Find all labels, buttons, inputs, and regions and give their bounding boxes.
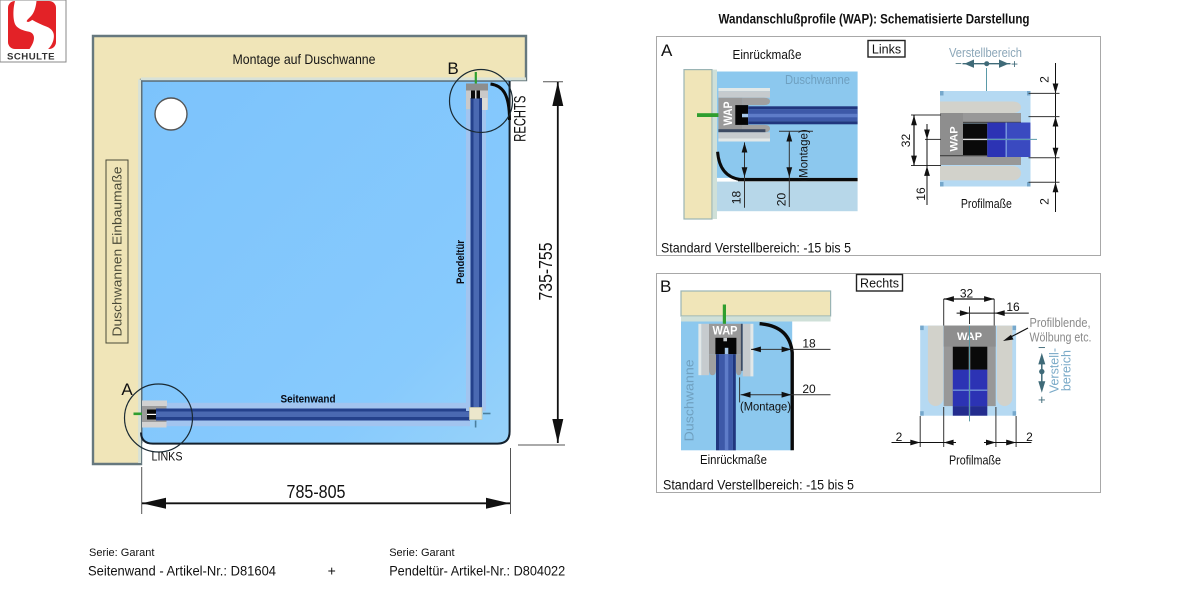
svg-text:A: A — [661, 41, 673, 60]
svg-text:−: − — [1038, 340, 1046, 355]
svg-text:B: B — [447, 59, 458, 78]
svg-text:Duschwanne: Duschwanne — [785, 73, 850, 87]
svg-text:16: 16 — [1006, 300, 1020, 314]
svg-text:Einrückmaße: Einrückmaße — [733, 47, 802, 62]
svg-text:32: 32 — [960, 287, 974, 301]
svg-text:Seitenwand: Seitenwand — [281, 394, 336, 406]
svg-text:Wandanschlußprofile (WAP): Sch: Wandanschlußprofile (WAP): Schematisiert… — [719, 12, 1030, 27]
svg-text:WAP: WAP — [721, 102, 735, 126]
svg-text:2: 2 — [1038, 76, 1052, 83]
svg-text:Links: Links — [872, 43, 901, 57]
svg-text:+: + — [328, 563, 336, 579]
svg-text:Montage auf Duschwanne: Montage auf Duschwanne — [233, 52, 376, 67]
svg-text:B: B — [660, 277, 671, 296]
svg-text:20: 20 — [775, 193, 789, 207]
svg-text:Duschwannen Einbaumaße: Duschwannen Einbaumaße — [110, 167, 125, 337]
svg-text:735-755: 735-755 — [536, 243, 556, 301]
svg-text:WAP: WAP — [713, 324, 738, 338]
svg-text:Standard Verstellbereich: -15: Standard Verstellbereich: -15 bis 5 — [663, 477, 854, 493]
svg-text:+: + — [1011, 57, 1018, 71]
svg-text:Seitenwand - Artikel-Nr.: D816: Seitenwand - Artikel-Nr.: D81604 — [88, 563, 276, 579]
svg-text:SCHULTE: SCHULTE — [7, 52, 55, 63]
svg-text:Serie: Garant: Serie: Garant — [389, 547, 454, 559]
svg-text:2: 2 — [896, 430, 903, 444]
svg-text:WAP: WAP — [949, 126, 961, 151]
svg-text:2: 2 — [1026, 430, 1033, 444]
svg-text:16: 16 — [914, 187, 928, 201]
svg-text:bereich: bereich — [1060, 350, 1074, 391]
svg-text:Einrückmaße: Einrückmaße — [700, 452, 767, 467]
svg-text:Pendeltür: Pendeltür — [455, 239, 467, 284]
svg-text:Profilblende,: Profilblende, — [1030, 316, 1091, 330]
svg-text:Pendeltür- Artikel-Nr.: D80402: Pendeltür- Artikel-Nr.: D804022 — [389, 563, 565, 579]
svg-text:+: + — [1038, 392, 1046, 407]
svg-text:Profilmaße: Profilmaße — [949, 453, 1001, 468]
svg-text:(Montage): (Montage) — [799, 129, 811, 182]
svg-text:785-805: 785-805 — [287, 482, 346, 502]
svg-text:Serie: Garant: Serie: Garant — [89, 547, 154, 559]
svg-text:18: 18 — [730, 191, 744, 205]
svg-text:LINKS: LINKS — [152, 452, 183, 464]
svg-text:A: A — [121, 380, 133, 399]
svg-text:2: 2 — [1038, 198, 1052, 205]
svg-text:32: 32 — [899, 134, 913, 148]
svg-text:Profilmaße: Profilmaße — [961, 196, 1012, 211]
svg-text:Rechts: Rechts — [860, 277, 899, 291]
svg-text:−: − — [955, 59, 962, 71]
svg-text:18: 18 — [802, 337, 816, 351]
svg-text:Standard Verstellbereich: -15: Standard Verstellbereich: -15 bis 5 — [661, 240, 851, 256]
svg-text:RECHTS: RECHTS — [512, 96, 530, 142]
svg-text:Duschwanne: Duschwanne — [682, 359, 697, 441]
svg-text:20: 20 — [802, 382, 816, 396]
svg-text:(Montage): (Montage) — [740, 402, 791, 414]
